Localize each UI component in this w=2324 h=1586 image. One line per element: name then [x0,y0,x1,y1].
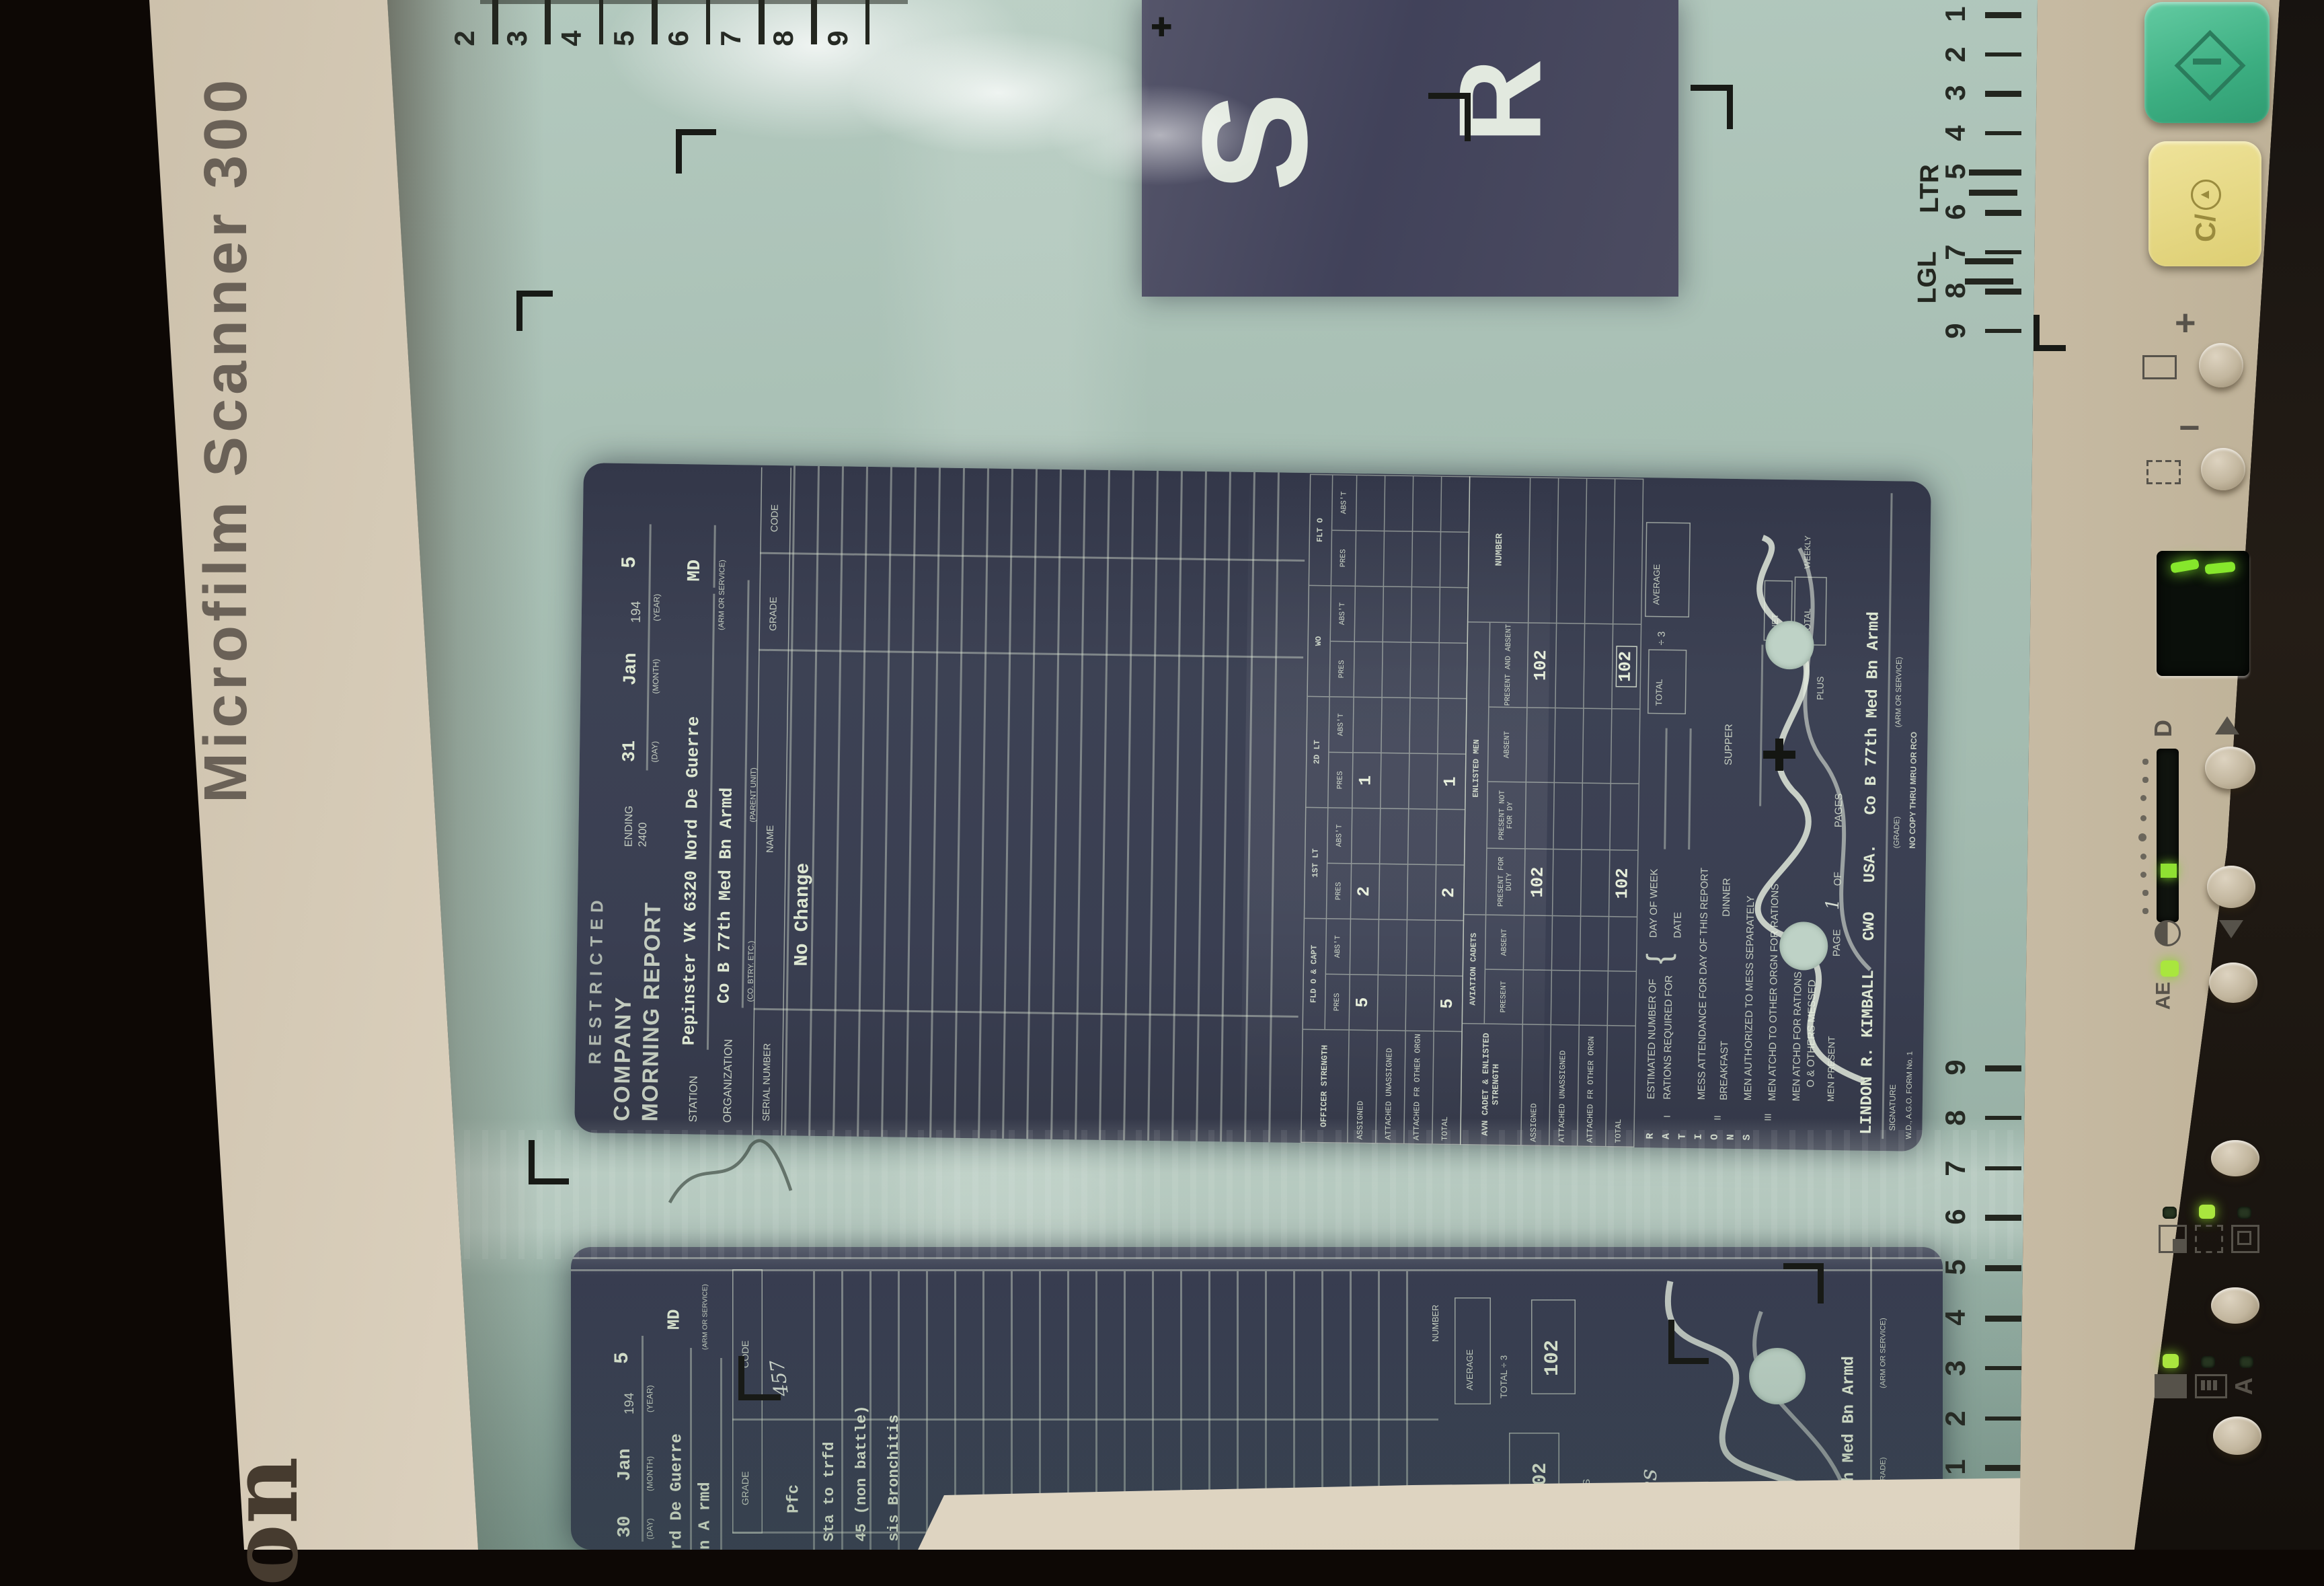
ruler-number: 3 [495,18,539,59]
rations-average-label: AVERAGE [1651,564,1662,605]
area-mask-icon [2195,1225,2223,1253]
ruler-number: 6 [655,18,699,59]
mask-mode-led [2163,1207,2177,1219]
rations-estimated: RATIONS REQUIRED FOR [1662,975,1675,1100]
ruler-tick [1985,1316,2021,1321]
ae-indicator-led [2161,960,2179,977]
table-value-cell [1552,915,1581,971]
pages-label: PAGES [1834,793,1845,827]
table-value-cell [1581,849,1610,916]
clear-button-label: C/ [2189,214,2221,242]
ruler-number: 5 [1935,1246,1975,1290]
of-label: OF [1832,872,1844,886]
arm-label: (ARM OR SERVICE) [717,560,727,630]
auto-label: A [2230,1377,2258,1395]
enlarge-icon [2142,355,2177,379]
ruler-tick [1985,1416,2021,1421]
form-rule-line [1123,470,1134,1140]
film-mode-led [2201,1356,2215,1368]
ending-time: 2400 [637,822,650,847]
doc-title: COMPANY [609,995,637,1121]
ruler-number: 8 [1935,1095,1975,1139]
form-rule-line [978,468,989,1138]
density-mid-knob[interactable] [2207,866,2255,908]
date-year-written: 5 [619,556,642,569]
rations-divide-label: ÷ 3 [1656,632,1668,646]
legal-size-label: LGL [1912,252,1942,304]
letter-size-mark [1969,169,2017,176]
table-value-cell [1582,782,1611,849]
morning-report-document: RESTRICTED COMPANY MORNING REPORT ENDING… [574,463,1931,1151]
positive-film-icon [2195,1374,2227,1398]
organization-label: ORGANIZATION [722,1039,735,1123]
classification-stamp: RESTRICTED [586,894,609,1064]
rations-date-label: DATE [1672,912,1684,938]
page-value: 1 [1822,899,1844,911]
mess-attendance-label: MESS ATTENDANCE FOR DAY OF THIS REPORT [1697,868,1711,1100]
form-rule-line [1026,469,1037,1139]
table-value-cell [1583,708,1613,783]
ruler-number: 2 [442,18,486,59]
table-value-cell [1613,478,1643,624]
density-level-mark [2160,864,2176,878]
film-scratch [666,1130,795,1215]
mode-select-knob[interactable] [2211,1140,2259,1176]
rations-estimated: ESTIMATED NUMBER OF [1646,979,1659,1099]
form-rule-line [1147,471,1158,1141]
form-rule-line [954,468,964,1138]
station-value: Pepinster VK 6320 Nord De Guerre [681,716,704,1046]
station-label: STATION [687,1075,700,1122]
table-value-cell [1611,783,1639,850]
date-day-label: (DAY) [650,741,660,763]
ruler-tick [1985,1266,2021,1271]
ruler-number: 2 [1935,1396,1975,1440]
density-label: D [2149,720,2177,737]
table-value-cell [1551,970,1580,1025]
seven-segment-digit [2204,562,2235,575]
form-rule-line [1050,469,1061,1139]
form-rule-line [1196,471,1206,1141]
ruler-tick [1985,1365,2021,1371]
letter-size-mark [1969,190,2017,196]
ruler-number: 3 [1935,1345,1975,1390]
ruler-tick [1985,1065,2021,1071]
form-rule-line [881,467,892,1137]
ruler-tick [1985,1166,2021,1171]
ruler-tick [1985,1115,2021,1121]
page-counter-display [2157,551,2249,676]
form-rule-line [1171,471,1182,1141]
model-label: Microfilm Scanner 300 [194,76,262,803]
stop-triangle-icon: ▲ [2190,180,2220,210]
ruler-number: 9 [814,18,859,59]
form-rule-line [1002,469,1013,1139]
form-rule-line [1099,470,1110,1140]
date-year-label: (YEAR) [652,594,662,621]
roster-header: CODE [769,504,781,532]
auto-exposure-label: AE [2153,982,2175,1010]
corner-mask-icon [2159,1225,2187,1253]
seven-segment-digit [2170,558,2200,573]
density-up-knob[interactable] [2205,747,2255,789]
negative-film-icon [2155,1374,2187,1398]
arm-value: MD [685,560,705,582]
table-value-cell [1580,970,1609,1025]
form-rule-line [832,466,843,1136]
legal-size-mark [1965,258,2013,264]
table-value-cell [1557,478,1587,624]
table-value-cell [1556,623,1586,708]
organization-value: Co B 77th Med Bn Armd [715,788,738,1004]
form-rule-line [857,467,867,1137]
table-value-cell: 102 [1613,624,1642,709]
border-mask-icon [2231,1225,2259,1253]
density-indicator [2157,749,2179,922]
ruler-number: 8 [761,18,806,59]
form-rule-line [905,467,916,1137]
rations-total-label: TOTAL [1654,679,1664,706]
diamond-bar-icon [2174,30,2245,101]
ruler-number: 4 [548,18,592,59]
film-mode-knob[interactable] [2211,1287,2259,1324]
ruler-number: 9 [1935,1045,1975,1090]
reduce-icon [2146,460,2181,484]
ruler-tick [1985,1215,2021,1221]
clear-stop-button[interactable]: C/ ▲ [2148,141,2261,266]
zoom-in-knob[interactable] [2199,343,2243,387]
grade-label: (GRADE) [1892,817,1901,849]
ending-label: ENDING [623,806,635,847]
triangle-up-icon [2215,716,2239,734]
start-button[interactable] [2144,2,2270,123]
date-year-printed: 194 [628,601,644,623]
day-of-week-label: DAY OF WEEK [1648,868,1660,938]
zoom-in-label: + [2175,303,2196,345]
half-circle-icon [2155,920,2181,946]
table-value-cell [1584,623,1614,708]
ruler-number: 7 [1935,1145,1975,1190]
microfilm-scanner-photo: S R RESTRICTED COMPANY MORNING REPORT EN… [0,0,2324,1550]
table-value-cell [1553,849,1582,916]
roster-header: SERIAL NUMBER [761,1043,773,1121]
brace: { [1640,953,1678,965]
film-mode-led [2163,1354,2179,1368]
form-rule-line [1075,469,1085,1139]
date-month-label: (MONTH) [651,659,660,694]
table-value-cell [1609,916,1637,971]
zoom-out-knob[interactable] [2201,448,2245,490]
letter-size-label: LTR [1914,164,1944,213]
date-day: 31 [620,740,640,762]
form-rule-line [1220,471,1231,1141]
doc-title: MORNING REPORT [637,901,666,1122]
triangle-down-icon [2219,920,2243,938]
table-value-cell [1554,782,1583,849]
table-value-cell: 102 [1609,849,1638,917]
ruler-tick [1985,1466,2021,1471]
ruler-tick [865,0,870,44]
page-label: PAGE [1832,929,1843,956]
film-mode-led [2239,1356,2253,1368]
arm-service-label: (ARM OR SERVICE) [1894,656,1904,727]
legal-size-mark [1965,278,2013,285]
copy-note: NO COPY THRU MRU OR RCO [1908,732,1919,849]
roster-header: NAME [765,825,776,853]
table-value-cell [1580,915,1609,971]
zoom-out-label: − [2179,408,2200,450]
ruler-number: 7 [708,18,752,59]
date-month: Jan [621,652,642,685]
brand-logo: on [210,1457,319,1586]
form-rule-line [808,466,819,1136]
mask-mode-led [2199,1205,2215,1219]
ruler-number: 4 [1935,1295,1975,1340]
ruler-number: 6 [1935,1195,1975,1240]
table-value-cell [1611,708,1641,784]
table-value-cell [1608,971,1637,1026]
form-rule-line [929,467,940,1137]
ruler-number: 5 [602,18,646,59]
table-value-cell [1555,708,1584,783]
table-value-cell [1585,478,1615,624]
diamond-bar-icon [2193,59,2221,65]
mask-mode-led [2237,1207,2251,1219]
roster-header: GRADE [768,597,779,631]
right-ruler-bottom: 987654321 [1933,0,2025,1550]
bottom-knob[interactable] [2213,1417,2261,1455]
ae-knob[interactable] [2209,962,2257,1003]
